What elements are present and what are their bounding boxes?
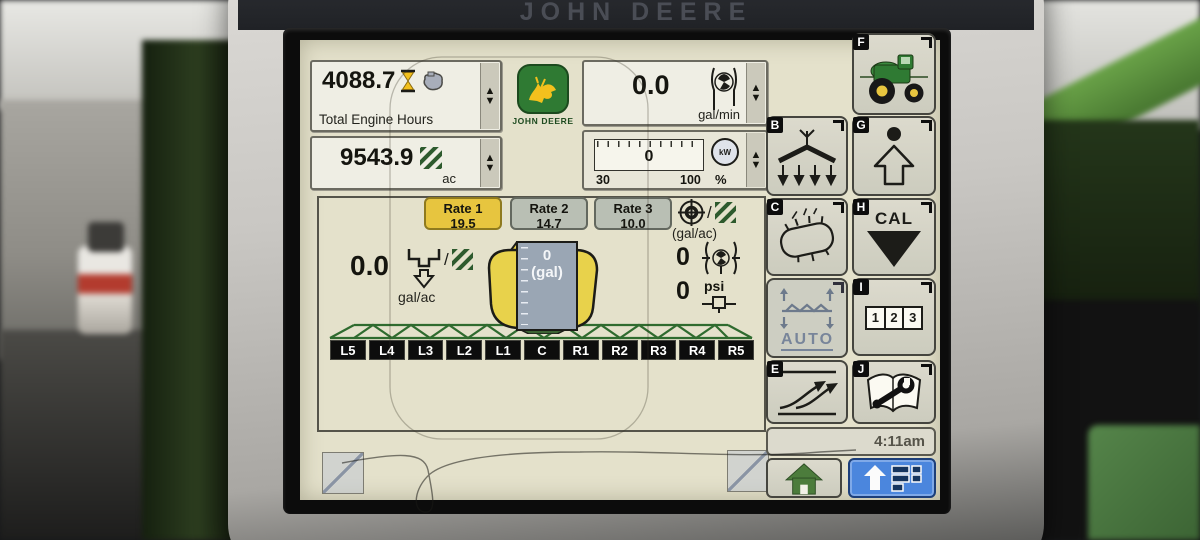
corner-mark-icon [921, 202, 932, 213]
flow-rate-box: 0.0 gal/min ▲ ▼ [582, 60, 768, 126]
flow-fan-icon [708, 66, 740, 112]
softkey-boomtrac-auto[interactable]: AUTO [766, 278, 848, 358]
rate-3-value: 10.0 [596, 216, 670, 231]
softkey-g-raise[interactable]: G [852, 116, 936, 196]
boom-section-C: C [524, 340, 560, 360]
engine-load-value: 0 [595, 148, 703, 166]
engine-load-min: 30 [596, 173, 610, 187]
rate-3-button[interactable]: Rate 3 10.0 [594, 197, 672, 230]
john-deere-logo-block: JOHN DEERE [506, 64, 580, 140]
boom-spray-icon [773, 127, 841, 189]
background-machinery-right [1035, 120, 1200, 310]
softkey-e-flush[interactable]: E [766, 360, 848, 424]
softkey-disabled-right[interactable] [727, 450, 769, 492]
softkey-j-service[interactable]: J [852, 360, 936, 424]
gauge-ticks [597, 141, 701, 147]
fan-speed-value: 0 [676, 243, 690, 272]
tank-gauge-ticks [521, 247, 528, 325]
area-unit: ac [442, 171, 456, 186]
john-deere-logo-icon [517, 64, 569, 114]
sprayer-vehicle-icon [858, 47, 930, 111]
rate-1-label: Rate 1 [426, 201, 500, 216]
pressure-valve-icon [700, 295, 738, 313]
softkey-b-label: B [767, 117, 783, 133]
numpad-123-icon: 1 2 3 [865, 306, 923, 330]
numpad-2: 2 [886, 306, 905, 330]
service-book-wrench-icon [860, 366, 928, 418]
boom-section-R5: R5 [718, 340, 754, 360]
area-spinner[interactable]: ▲ ▼ [480, 139, 499, 187]
tank-fill-icon [773, 208, 841, 268]
corner-mark-icon [833, 120, 844, 131]
application-rate-icon [406, 246, 442, 290]
softkey-i-numeric-entry[interactable]: I 1 2 3 [852, 278, 936, 356]
grease-gun-cap [88, 222, 124, 252]
softkey-c-tank-fill[interactable]: C [766, 198, 848, 276]
boom-section-L1: L1 [485, 340, 521, 360]
boom-section-L5: L5 [330, 340, 366, 360]
rate-1-button[interactable]: Rate 1 19.5 [424, 197, 502, 230]
target-icon [678, 199, 705, 226]
boom-section-R2: R2 [602, 340, 638, 360]
corner-mark-icon [921, 37, 932, 48]
softkey-i-label: I [853, 279, 869, 295]
corner-mark-icon [921, 364, 932, 375]
boom-section-L4: L4 [369, 340, 405, 360]
boom-section-row: L5 L4 L3 L2 L1 C R1 R2 R3 R4 R5 [330, 340, 754, 360]
raise-arrow-icon [865, 124, 923, 190]
softkey-disabled-left[interactable] [322, 452, 364, 494]
flush-arrows-icon [774, 368, 840, 418]
slash-separator: / [444, 250, 449, 270]
boom-section-R1: R1 [563, 340, 599, 360]
engine-hours-label: Total Engine Hours [319, 112, 433, 127]
flow-value: 0.0 [632, 70, 670, 101]
clock-time: 4:11am [768, 429, 934, 450]
spinner-down-icon: ▼ [485, 96, 496, 106]
boom-section-L3: L3 [408, 340, 444, 360]
rate-2-label: Rate 2 [512, 201, 586, 216]
engine-hours-box: 4088.7 Total Engine Hours ▲ ▼ [310, 60, 502, 132]
cal-down-triangle-icon [867, 231, 921, 267]
softkey-g-label: G [853, 117, 869, 133]
background-green-panel [1088, 425, 1200, 540]
per-area-stripes-icon [714, 201, 737, 224]
actual-rate-value: 0.0 [350, 250, 389, 282]
home-icon [785, 462, 823, 496]
engine-icon [421, 71, 444, 92]
slash-separator: / [707, 203, 712, 223]
boom-auto-level-icon [774, 287, 840, 329]
page-up-button[interactable] [848, 458, 936, 498]
home-button[interactable] [766, 458, 842, 498]
photo-stage: JOHN DEERE 4088.7 Total Engine Hours ▲ ▼ [0, 0, 1200, 540]
engine-load-gauge: 0 [594, 139, 704, 171]
tank-level-gauge: 0 (gal) [516, 241, 578, 331]
engine-load-max: 100 [680, 173, 701, 187]
engine-hours-value: 4088.7 [322, 67, 395, 95]
area-box: 9543.9 ac ▲ ▼ [310, 136, 502, 190]
grease-gun [78, 246, 132, 334]
hourglass-icon [400, 69, 416, 93]
spinner-down-icon: ▼ [485, 163, 496, 173]
softkey-j-label: J [853, 361, 869, 377]
pump-fan-icon [700, 240, 742, 278]
pressure-unit: psi [704, 278, 724, 294]
softkey-e-label: E [767, 361, 783, 377]
time-display: 4:11am [766, 427, 936, 456]
softkey-c-label: C [767, 199, 783, 215]
spinner-down-icon: ▼ [751, 160, 762, 170]
corner-mark-icon [833, 202, 844, 213]
actual-rate-unit: gal/ac [398, 289, 435, 305]
numpad-3: 3 [904, 306, 923, 330]
engine-load-unit: % [715, 172, 727, 187]
pressure-value: 0 [676, 277, 690, 306]
corner-mark-icon [921, 120, 932, 131]
actual-rate-icon-group: / [406, 246, 474, 290]
flow-spinner[interactable]: ▲ ▼ [746, 63, 765, 123]
rate-2-value: 14.7 [512, 216, 586, 231]
spinner-down-icon: ▼ [751, 93, 762, 103]
area-value: 9543.9 [340, 144, 413, 172]
softkey-f-label: F [853, 34, 869, 50]
engine-kw-icon: kW [711, 138, 739, 166]
numpad-1: 1 [865, 306, 886, 330]
target-rate-unit: (gal/ac) [672, 226, 717, 241]
john-deere-logo-text: JOHN DEERE [506, 116, 580, 126]
auto-label: AUTO [781, 331, 833, 351]
rate-2-button[interactable]: Rate 2 14.7 [510, 197, 588, 230]
corner-mark-icon [833, 282, 844, 293]
rate-3-label: Rate 3 [596, 201, 670, 216]
page-up-icon [861, 463, 923, 493]
flow-unit: gal/min [698, 107, 740, 122]
engine-load-box: 0 30 100 kW % ▲ ▼ [582, 130, 768, 190]
monitor-top-bezel: JOHN DEERE [238, 0, 1034, 30]
boom-section-L2: L2 [446, 340, 482, 360]
target-rate-icon-group: / [678, 199, 737, 226]
softkey-b-boom[interactable]: B [766, 116, 848, 196]
boom-section-R3: R3 [641, 340, 677, 360]
engine-kw-label: kW [719, 148, 731, 157]
area-stripes-icon [419, 146, 443, 170]
boom-section-R4: R4 [679, 340, 715, 360]
monitor-brand-text: JOHN DEERE [238, 0, 1034, 27]
softkey-h-calibrate[interactable]: H CAL [852, 198, 936, 276]
actual-rate-stripes-icon [451, 248, 474, 271]
softkey-f-sprayer[interactable]: F [852, 33, 936, 115]
corner-mark-icon [921, 282, 932, 293]
softkey-h-label: H [853, 199, 869, 215]
rate-1-value: 19.5 [426, 216, 500, 231]
engine-hours-spinner[interactable]: ▲ ▼ [480, 63, 499, 129]
background-machinery-left [142, 40, 242, 540]
engine-load-spinner[interactable]: ▲ ▼ [746, 133, 765, 187]
